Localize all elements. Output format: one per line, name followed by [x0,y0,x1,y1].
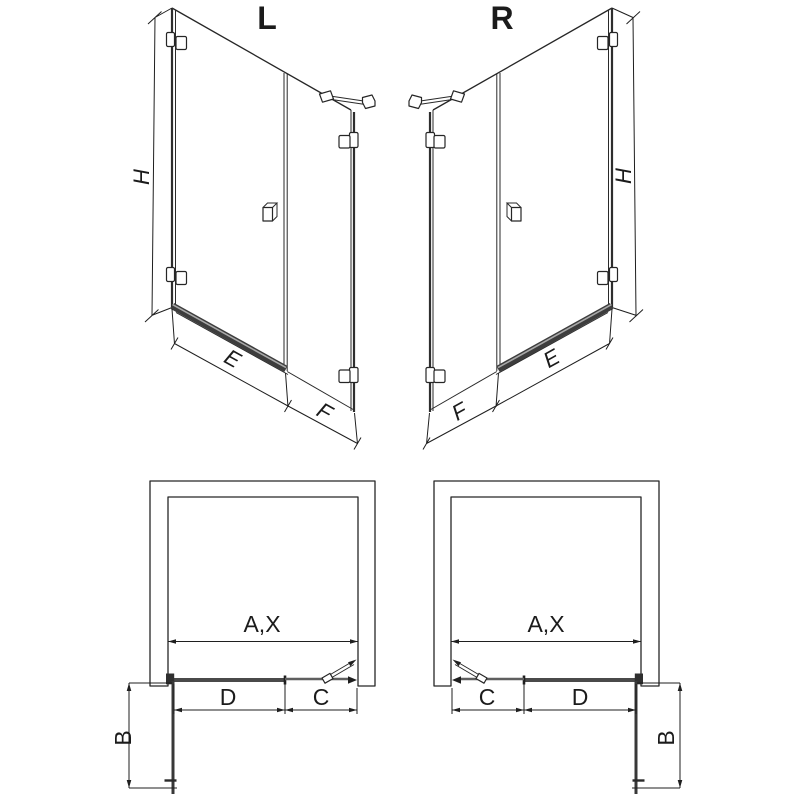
dim-label-h: H [129,169,154,185]
perspective-view-left: L [129,0,375,450]
shower-door-diagram: L [0,0,800,800]
walls-hatched [150,481,375,686]
dimension-height-left: H [129,8,172,322]
hinge-top [598,33,618,50]
panel-bracket-top [426,133,445,149]
dim-label-b: B [653,730,679,745]
hinge-top-clamp [176,37,187,50]
support-bar-glass-clamp [476,673,487,683]
dimension-side-left: B [110,683,177,788]
door-panel-seam [284,73,287,371]
panel-bracket-bottom [426,368,445,383]
support-bar [409,91,465,109]
support-bar-glass-clamp [322,673,333,683]
door-handle [507,203,521,221]
wall-profile-fitting [452,676,461,684]
dim-label-c: C [313,684,330,710]
dim-label-b: B [110,730,136,745]
dimension-panel-width-right: F [423,396,496,449]
view-right-label: R [490,0,513,36]
perspective-view-right: R [409,0,643,450]
support-bar [320,91,376,109]
dim-label-d: D [220,684,237,710]
dim-label-ax: A,X [243,611,280,637]
dim-label-ax: A,X [527,611,564,637]
hinge-bottom [598,268,618,285]
hinge-bottom-clamp [176,272,187,285]
support-bar-wall-bracket [409,95,422,109]
wall-profile-fitting [348,676,357,684]
door-panel-seam [497,73,500,371]
view-left-label: L [257,0,277,36]
dimension-side-right: B [632,683,682,788]
panel-bracket-top [339,133,358,149]
dim-label-d: D [572,684,589,710]
technical-drawing-sheet: L [0,0,800,800]
door-handle [263,203,277,221]
hinge-top-plate [167,33,175,47]
dim-label-e: E [220,344,245,373]
hinge-bottom [167,268,187,285]
dimension-door-fixed-left: D C [174,684,357,714]
hinge-bottom-plate [167,268,175,282]
dim-label-f: F [313,397,338,426]
dimension-panel-width-left: F [288,397,361,449]
dimension-door-fixed-right: C D [452,684,636,714]
plan-view-left: A,X D C B [110,481,375,794]
walls-hatched [434,481,659,686]
support-bar-wall-bracket [363,95,376,109]
dim-label-e: E [539,344,564,373]
panel-bracket-bottom [339,368,358,383]
dim-label-h: H [611,168,636,184]
dimension-opening-left: A,X [168,611,358,644]
dim-label-c: C [479,684,496,710]
dimension-opening-right: A,X [451,611,641,644]
plan-view-right: A,X C D B [434,481,682,794]
dim-label-f: F [447,396,472,425]
hinge-top [167,33,187,50]
